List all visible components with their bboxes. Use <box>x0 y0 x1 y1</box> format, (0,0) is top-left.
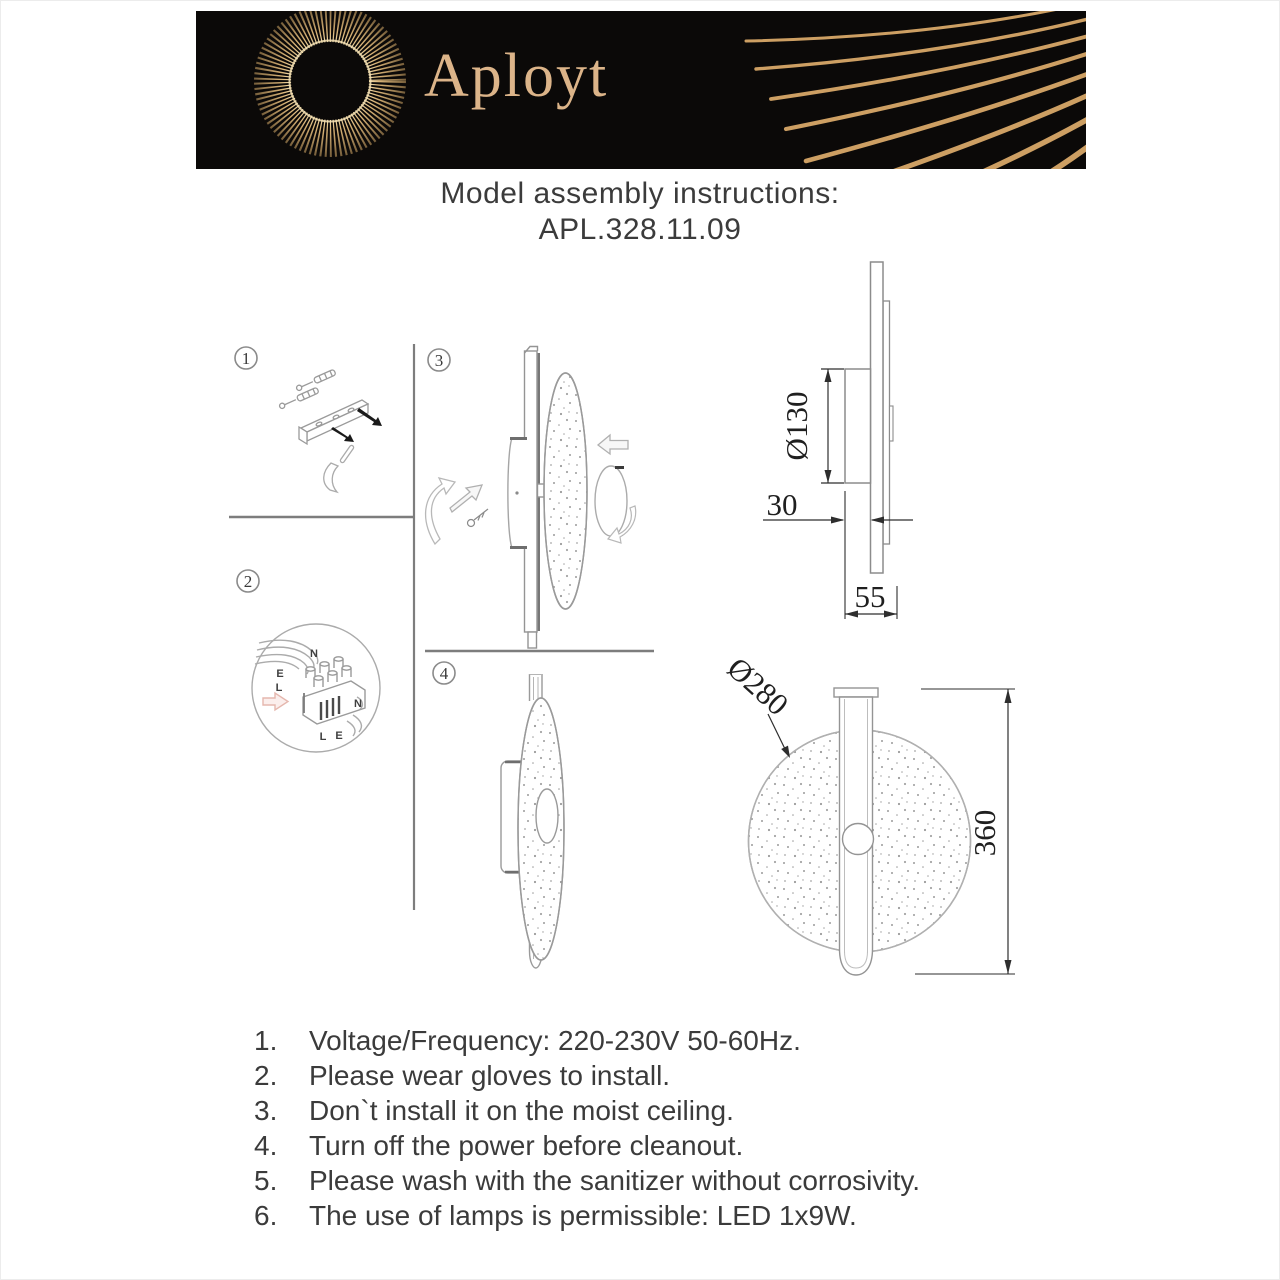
note-item: 5. Please wash with the sanitizer withou… <box>254 1163 1074 1198</box>
small-fitting-parts <box>324 445 355 492</box>
svg-text:3: 3 <box>435 351 444 370</box>
step-2-badge: 2 <box>237 570 259 592</box>
canopy-side <box>845 369 871 483</box>
mounting-bracket <box>299 400 368 444</box>
note-text: The use of lamps is permissible: LED 1x9… <box>309 1198 857 1233</box>
note-number: 4. <box>254 1128 309 1163</box>
note-number: 2. <box>254 1058 309 1093</box>
instruction-sheet: Aployt Model assembly instructions: APL.… <box>0 0 1280 1280</box>
wire-label-n: N <box>310 648 318 660</box>
note-number: 1. <box>254 1023 309 1058</box>
step-1-diagram <box>279 369 382 492</box>
step-3-diagram <box>426 347 636 649</box>
wire-label-l-out: L <box>320 731 327 743</box>
back-plate <box>883 301 890 544</box>
side-view-drawing: Ø130 30 55 <box>763 262 913 619</box>
center-hub <box>843 824 874 855</box>
nub <box>890 406 894 441</box>
push-arrow <box>598 435 628 454</box>
wire-label-n-out: N <box>354 698 362 710</box>
step-3-badge: 3 <box>428 349 450 371</box>
notes-list: 1. Voltage/Frequency: 220-230V 50-60Hz. … <box>254 1023 1074 1233</box>
note-item: 2. Please wear gloves to install. <box>254 1058 1074 1093</box>
step-1-badge: 1 <box>235 347 257 369</box>
note-number: 6. <box>254 1198 309 1233</box>
svg-text:2: 2 <box>244 572 253 591</box>
retaining-ring <box>595 466 636 543</box>
wire-label-e: E <box>276 668 283 680</box>
dimension-total-height: 360 <box>967 810 1002 857</box>
note-item: 6. The use of lamps is permissible: LED … <box>254 1198 1074 1233</box>
note-text: Don`t install it on the moist ceiling. <box>309 1093 734 1128</box>
dimension-total-depth: 55 <box>855 579 886 614</box>
tube-cap <box>834 688 878 697</box>
dimension-canopy-diameter: Ø130 <box>779 392 814 461</box>
note-text: Turn off the power before cleanout. <box>309 1128 743 1163</box>
note-item: 1. Voltage/Frequency: 220-230V 50-60Hz. <box>254 1023 1074 1058</box>
tube-top <box>530 674 543 701</box>
svg-text:1: 1 <box>242 349 251 368</box>
wall-plate <box>525 347 539 649</box>
wire-label-e-out: E <box>335 730 342 742</box>
step-4-diagram <box>501 674 564 968</box>
dimension-disc-diameter: Ø280 <box>721 650 796 722</box>
note-text: Voltage/Frequency: 220-230V 50-60Hz. <box>309 1023 801 1058</box>
insert-arrow <box>450 485 482 512</box>
note-item: 4. Turn off the power before cleanout. <box>254 1128 1074 1163</box>
wire-label-l: L <box>276 682 283 694</box>
tube-front <box>834 688 878 975</box>
rotate-arrow <box>426 478 455 544</box>
note-number: 3. <box>254 1093 309 1128</box>
front-view-drawing: Ø280 360 <box>721 650 1015 975</box>
note-text: Please wear gloves to install. <box>309 1058 670 1093</box>
step-4-badge: 4 <box>433 662 455 684</box>
front-plate <box>871 262 884 573</box>
svg-text:4: 4 <box>440 664 449 683</box>
note-text: Please wash with the sanitizer without c… <box>309 1163 920 1198</box>
center-hole <box>536 789 558 843</box>
note-number: 5. <box>254 1163 309 1198</box>
note-item: 3. Don`t install it on the moist ceiling… <box>254 1093 1074 1128</box>
ring-rotate-arrow <box>608 506 636 543</box>
diffuser-disc-front <box>518 698 564 960</box>
dimension-canopy-depth: 30 <box>767 487 798 522</box>
diffuser-disc <box>544 373 587 609</box>
screw <box>468 509 489 527</box>
step-2-diagram: N E L N L E <box>252 624 380 752</box>
